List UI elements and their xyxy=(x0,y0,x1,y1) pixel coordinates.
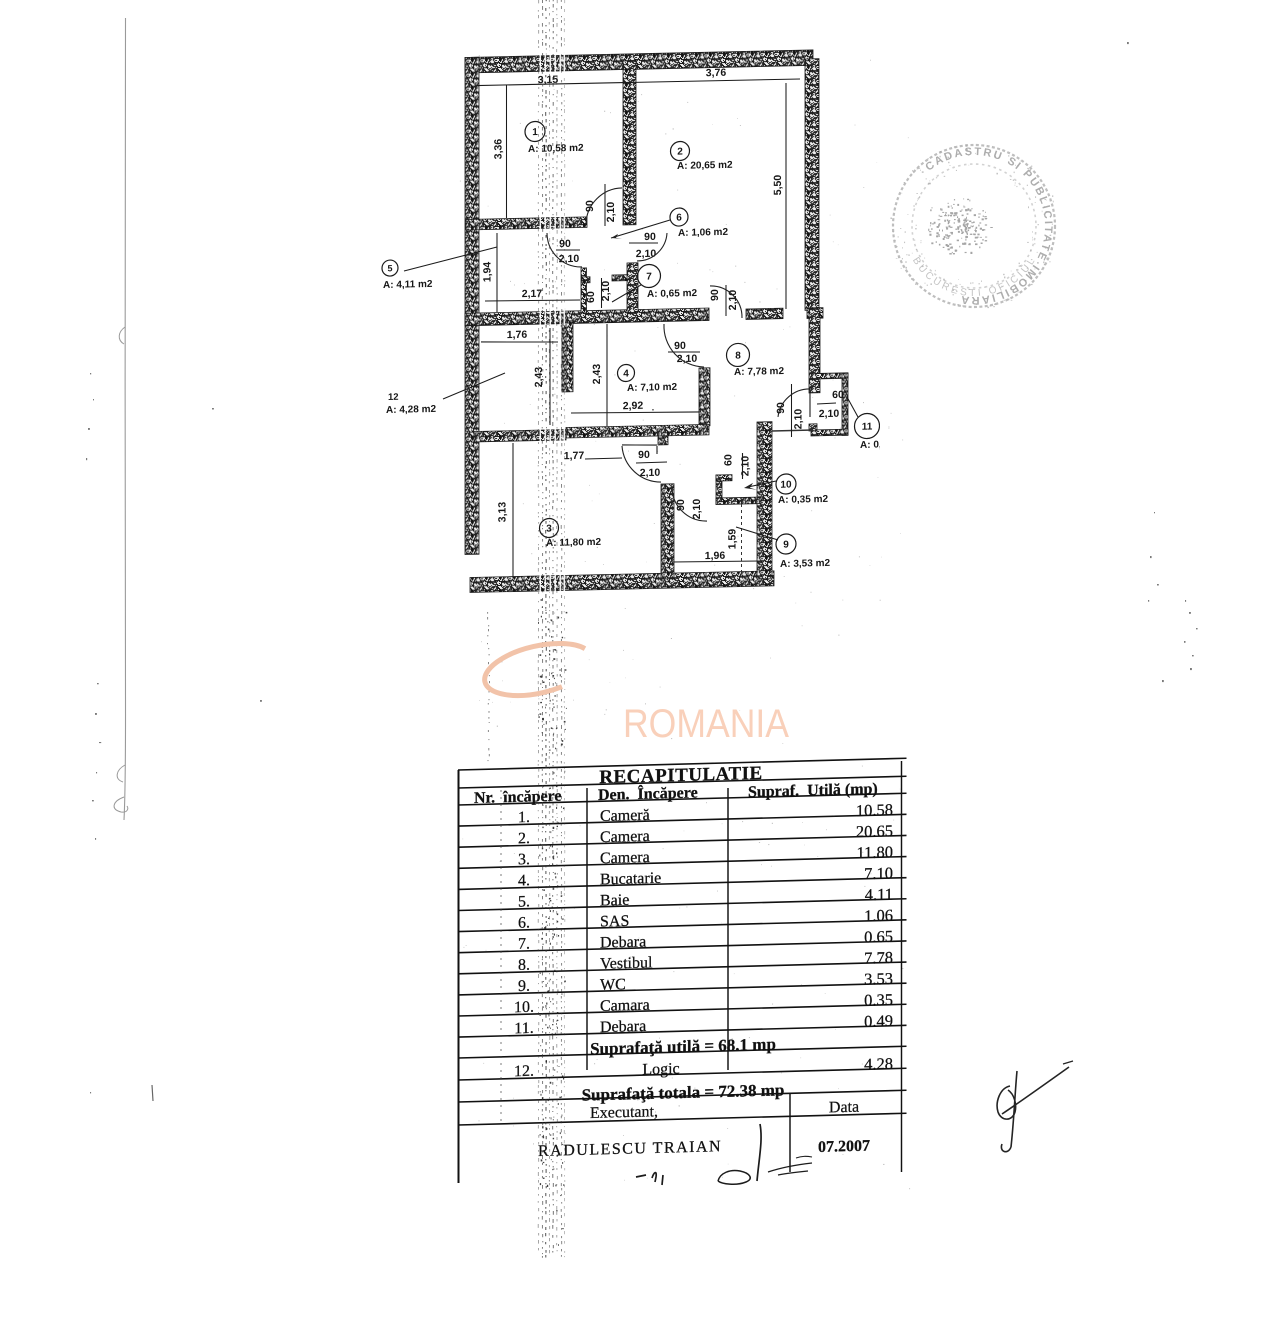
svg-text:ROMANIA: ROMANIA xyxy=(623,702,789,746)
